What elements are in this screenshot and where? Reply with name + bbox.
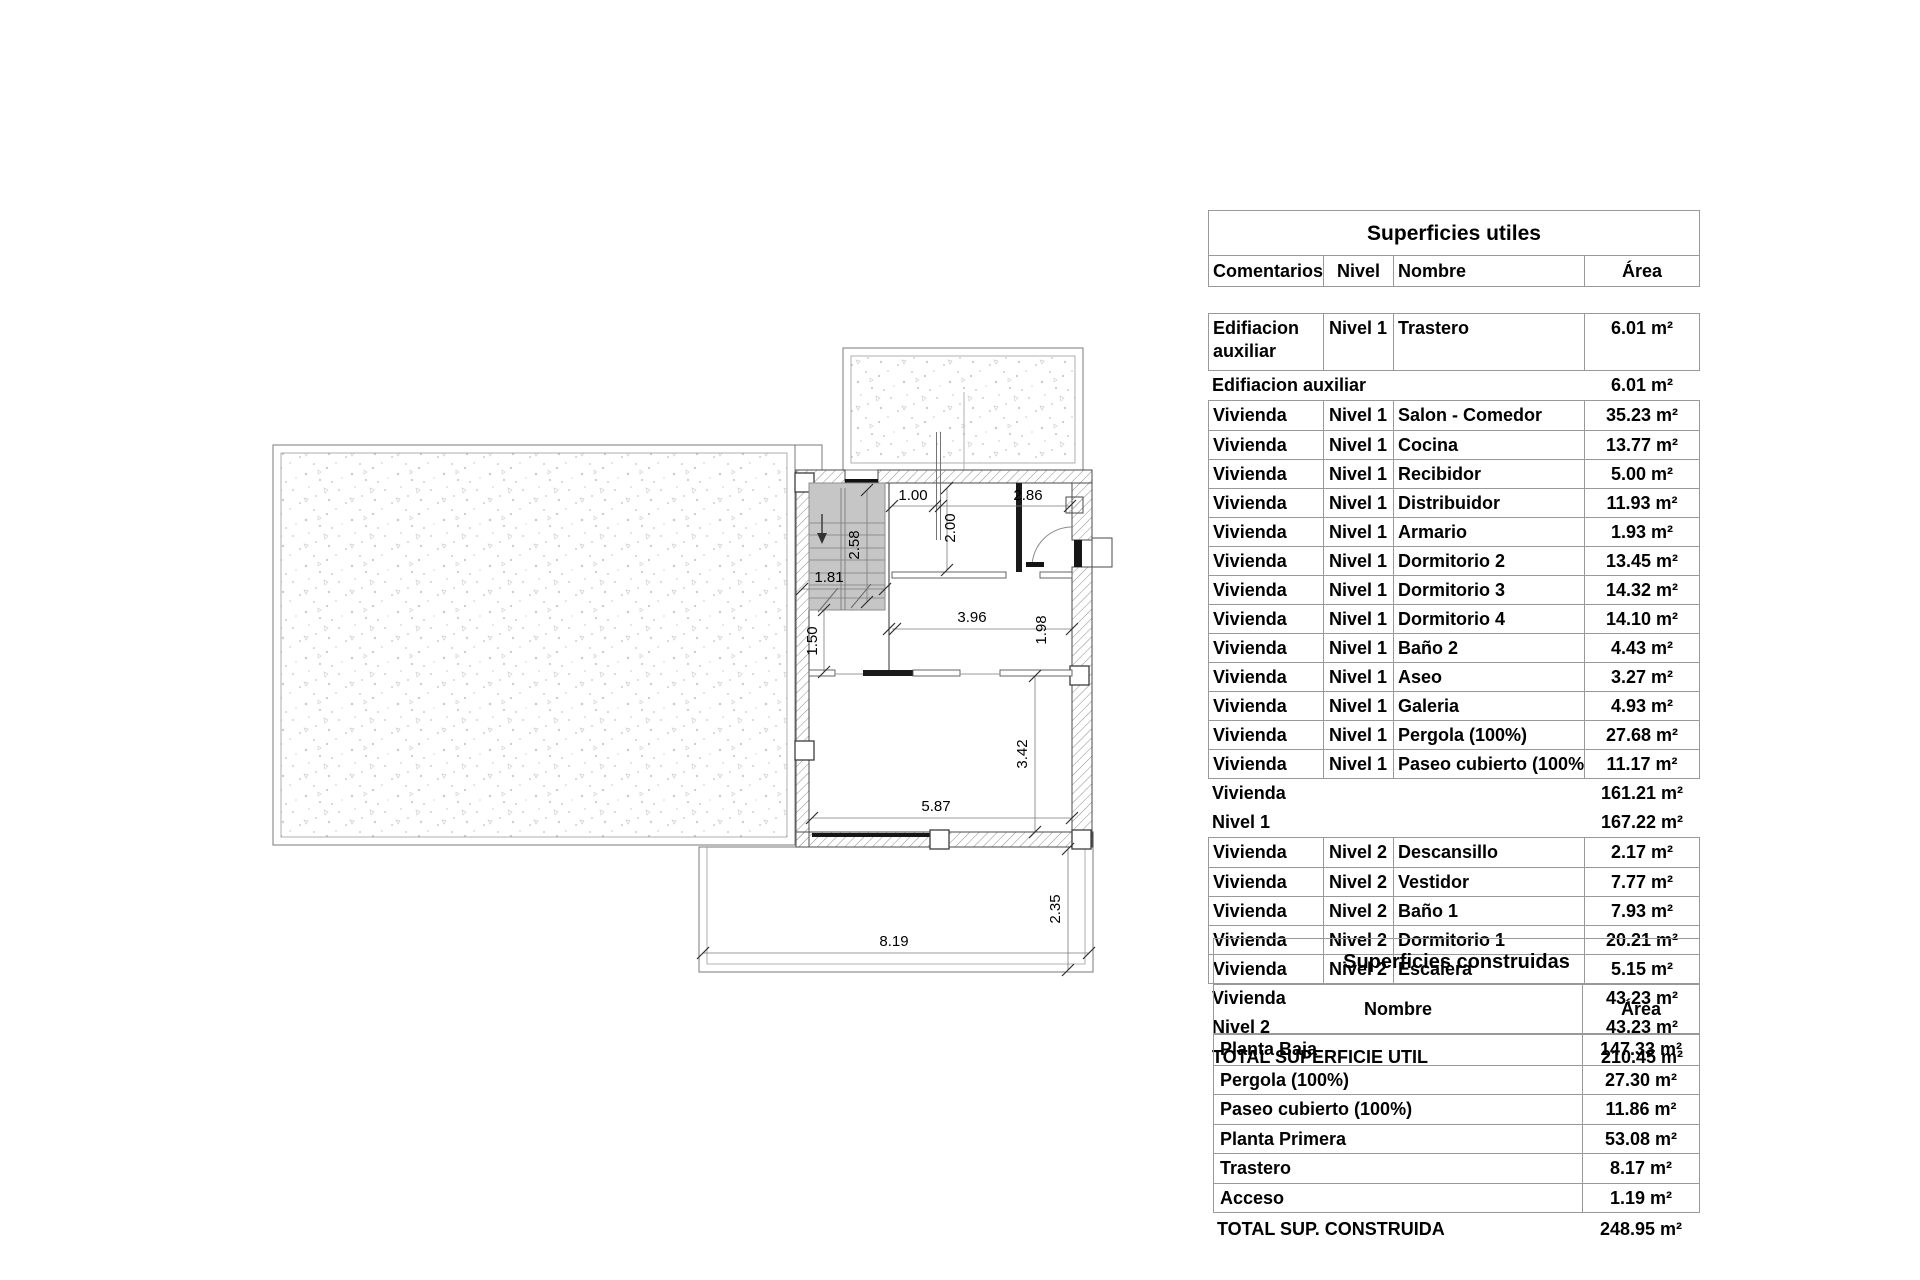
table-row: ViviendaNivel 1Aseo3.27 m² — [1209, 662, 1699, 691]
dimension-label: 2.00 — [942, 513, 959, 542]
table-cell: 8.17 m² — [1582, 1154, 1699, 1183]
table-cell: Nivel 1 — [1323, 314, 1393, 370]
table-cell: Nivel 1 — [1323, 605, 1393, 633]
column-header-nombre: Nombre — [1214, 985, 1582, 1033]
table-cell: 7.77 m² — [1584, 868, 1699, 896]
table-superficies-construidas: Superficies construidas Nombre Área Plan… — [1213, 938, 1700, 1245]
construidas-header-row: Nombre Área — [1214, 985, 1699, 1033]
table-row: ViviendaNivel 1Paseo cubierto (100%)11.1… — [1209, 749, 1699, 778]
table-cell: Nivel 1 — [1323, 431, 1393, 459]
table-cell: Vivienda — [1209, 547, 1323, 575]
table-cell: Salon - Comedor — [1393, 401, 1584, 430]
table-cell: Paseo cubierto (100%) — [1393, 750, 1584, 778]
table-cell: Vivienda — [1209, 750, 1323, 778]
table-row: ViviendaNivel 2Baño 17.93 m² — [1209, 896, 1699, 925]
window-band — [812, 833, 932, 837]
table-cell: Descansillo — [1393, 838, 1584, 867]
table-cell: Baño 2 — [1393, 634, 1584, 662]
dimension-label: 2.35 — [1047, 894, 1064, 923]
table-cell: Dormitorio 4 — [1393, 605, 1584, 633]
terrace-upper — [843, 348, 1083, 470]
table-cell: Nivel 1 — [1323, 634, 1393, 662]
subtotal-value: 6.01 m² — [1584, 371, 1700, 400]
table-row: Pergola (100%)27.30 m² — [1214, 1065, 1699, 1095]
table-cell: 1.19 m² — [1582, 1184, 1699, 1213]
column-header-area: Área — [1584, 256, 1699, 286]
table-cell: 11.17 m² — [1584, 750, 1699, 778]
table-row: ViviendaNivel 1Baño 24.43 m² — [1209, 633, 1699, 662]
utiles-header-row: Comentarios Nivel Nombre Área — [1209, 256, 1699, 286]
table-cell: Vivienda — [1209, 721, 1323, 749]
table-cell: Armario — [1393, 518, 1584, 546]
table-cell: Nivel 1 — [1323, 518, 1393, 546]
table-cell: Nivel 1 — [1323, 750, 1393, 778]
table-cell: Trastero — [1214, 1154, 1582, 1183]
table-cell: 147.33 m² — [1582, 1035, 1699, 1065]
pillar — [1072, 830, 1091, 849]
table-row: Planta Primera53.08 m² — [1214, 1124, 1699, 1154]
stair-opening-sill — [845, 479, 878, 483]
table-cell: 3.27 m² — [1584, 663, 1699, 691]
table-row: ViviendaNivel 1Galeria4.93 m² — [1209, 691, 1699, 720]
dimension-label: 1.00 — [898, 487, 927, 504]
dimension-label: 1.50 — [804, 626, 821, 655]
table-cell: Nivel 2 — [1323, 868, 1393, 896]
table-cell: 11.86 m² — [1582, 1095, 1699, 1124]
table-cell: Aseo — [1393, 663, 1584, 691]
table-cell: Vestidor — [1393, 868, 1584, 896]
pillar — [1070, 666, 1089, 685]
column-header-area: Área — [1582, 985, 1699, 1033]
table-row: Trastero8.17 m² — [1214, 1153, 1699, 1183]
subtotal-label: Nivel 1 — [1212, 808, 1270, 837]
column-header-comentarios: Comentarios — [1209, 256, 1323, 286]
entry-door-slab — [1074, 540, 1082, 567]
table-row: ViviendaNivel 1Pergola (100%)27.68 m² — [1209, 720, 1699, 749]
table-cell: Vivienda — [1209, 518, 1323, 546]
construidas-rows-block: Planta Baja147.33 m²Pergola (100%)27.30 … — [1213, 1034, 1700, 1213]
table-cell: Nivel 1 — [1323, 460, 1393, 488]
table-cell: Nivel 2 — [1323, 838, 1393, 867]
utiles-nivel1-block: ViviendaNivel 1Salon - Comedor35.23 m²Vi… — [1208, 400, 1700, 779]
table-cell: 14.32 m² — [1584, 576, 1699, 604]
table-row: ViviendaNivel 1Armario1.93 m² — [1209, 517, 1699, 546]
pillar — [930, 830, 949, 849]
table-cell: Pergola (100%) — [1393, 721, 1584, 749]
table-cell: Vivienda — [1209, 431, 1323, 459]
table-cell: 5.00 m² — [1584, 460, 1699, 488]
table-cell: Vivienda — [1209, 605, 1323, 633]
table-row: ViviendaNivel 1Distribuidor11.93 m² — [1209, 488, 1699, 517]
table-row: Paseo cubierto (100%)11.86 m² — [1214, 1094, 1699, 1124]
floor-plan-sheet: 1.00 2.86 2.00 2.58 1.81 1.50 3.96 1.98 … — [0, 0, 1920, 1280]
table-cell: Nivel 1 — [1323, 692, 1393, 720]
table-cell: Nivel 1 — [1323, 547, 1393, 575]
table-cell: Edifiacion auxiliar — [1209, 314, 1323, 370]
table-row: ViviendaNivel 2Descansillo2.17 m² — [1209, 838, 1699, 867]
table-row: ViviendaNivel 1Salon - Comedor35.23 m² — [1209, 401, 1699, 430]
table-cell: 14.10 m² — [1584, 605, 1699, 633]
dimension-label: 2.86 — [1013, 487, 1042, 504]
table-cell: 13.77 m² — [1584, 431, 1699, 459]
table-row: ViviendaNivel 1Cocina13.77 m² — [1209, 430, 1699, 459]
table-cell: Nivel 2 — [1323, 897, 1393, 925]
construidas-title: Superficies construidas — [1214, 939, 1699, 985]
table-cell: 1.93 m² — [1584, 518, 1699, 546]
table-cell: Nivel 1 — [1323, 576, 1393, 604]
table-cell: Dormitorio 2 — [1393, 547, 1584, 575]
dimension-label: 5.87 — [921, 798, 950, 815]
table-cell: Distribuidor — [1393, 489, 1584, 517]
table-cell: 4.43 m² — [1584, 634, 1699, 662]
column-header-nivel: Nivel — [1323, 256, 1393, 286]
table-cell: Vivienda — [1209, 634, 1323, 662]
dimension-label: 8.19 — [879, 933, 908, 950]
table-cell: Vivienda — [1209, 663, 1323, 691]
subtotal-row: Edifiacion auxiliar 6.01 m² — [1208, 371, 1700, 400]
table-row: ViviendaNivel 1Recibidor5.00 m² — [1209, 459, 1699, 488]
table-cell: 4.93 m² — [1584, 692, 1699, 720]
table-cell: Nivel 1 — [1323, 401, 1393, 430]
dimension-label: 3.96 — [957, 609, 986, 626]
dimension-label: 3.42 — [1014, 739, 1031, 768]
table-cell: Vivienda — [1209, 838, 1323, 867]
table-cell: Vivienda — [1209, 868, 1323, 896]
table-cell: 27.30 m² — [1582, 1066, 1699, 1095]
terrace-left — [273, 445, 822, 845]
subtotal-label: Vivienda — [1212, 779, 1286, 808]
table-cell: Nivel 1 — [1323, 489, 1393, 517]
table-cell: 2.17 m² — [1584, 838, 1699, 867]
table-cell: Trastero — [1393, 314, 1584, 370]
table-row: ViviendaNivel 1Dormitorio 213.45 m² — [1209, 546, 1699, 575]
utiles-title: Superficies utiles — [1209, 211, 1699, 256]
table-cell: Vivienda — [1209, 692, 1323, 720]
utiles-header-block: Superficies utiles Comentarios Nivel Nom… — [1208, 210, 1700, 287]
table-cell: 35.23 m² — [1584, 401, 1699, 430]
subtotal-row: Vivienda 161.21 m² — [1208, 779, 1700, 808]
total-value: 248.95 m² — [1582, 1213, 1700, 1245]
door-leaf — [1026, 562, 1044, 567]
table-cell: Baño 1 — [1393, 897, 1584, 925]
construidas-header-block: Superficies construidas Nombre Área — [1213, 938, 1700, 1034]
dimension-label: 1.98 — [1033, 615, 1050, 644]
table-cell: Dormitorio 3 — [1393, 576, 1584, 604]
table-cell: Pergola (100%) — [1214, 1066, 1582, 1095]
table-cell: Vivienda — [1209, 401, 1323, 430]
table-row: Edifiacion auxiliar Nivel 1 Trastero 6.0… — [1209, 314, 1699, 370]
table-cell: Paseo cubierto (100%) — [1214, 1095, 1582, 1124]
table-cell: Planta Baja — [1214, 1035, 1582, 1065]
dimension-label: 2.58 — [846, 530, 863, 559]
table-cell: Nivel 1 — [1323, 721, 1393, 749]
table-cell: 53.08 m² — [1582, 1125, 1699, 1154]
table-cell: 11.93 m² — [1584, 489, 1699, 517]
table-cell: Vivienda — [1209, 897, 1323, 925]
total-label: TOTAL SUP. CONSTRUIDA — [1217, 1213, 1445, 1245]
table-cell: Planta Primera — [1214, 1125, 1582, 1154]
table-cell: 13.45 m² — [1584, 547, 1699, 575]
table-row: ViviendaNivel 1Dormitorio 314.32 m² — [1209, 575, 1699, 604]
table-cell: 27.68 m² — [1584, 721, 1699, 749]
table-cell: Recibidor — [1393, 460, 1584, 488]
entry-step — [1092, 538, 1112, 567]
table-cell: Vivienda — [1209, 576, 1323, 604]
table-cell: Vivienda — [1209, 489, 1323, 517]
subtotal-value: 167.22 m² — [1584, 808, 1700, 837]
pillar — [795, 741, 814, 760]
subtotal-row: Nivel 1 167.22 m² — [1208, 808, 1700, 837]
table-cell: Cocina — [1393, 431, 1584, 459]
subtotal-label: Edifiacion auxiliar — [1212, 371, 1366, 400]
column-header-nombre: Nombre — [1393, 256, 1584, 286]
spacer — [1208, 287, 1700, 313]
table-row: Acceso1.19 m² — [1214, 1183, 1699, 1213]
table-row: ViviendaNivel 2Vestidor7.77 m² — [1209, 867, 1699, 896]
table-cell: 7.93 m² — [1584, 897, 1699, 925]
table-cell: Acceso — [1214, 1184, 1582, 1213]
table-cell: Vivienda — [1209, 460, 1323, 488]
total-sup-construida-row: TOTAL SUP. CONSTRUIDA 248.95 m² — [1213, 1213, 1700, 1245]
table-cell: Nivel 1 — [1323, 663, 1393, 691]
table-cell: Galeria — [1393, 692, 1584, 720]
table-cell: 6.01 m² — [1584, 314, 1699, 370]
table-row: ViviendaNivel 1Dormitorio 414.10 m² — [1209, 604, 1699, 633]
table-row: Planta Baja147.33 m² — [1214, 1035, 1699, 1065]
utiles-edif-block: Edifiacion auxiliar Nivel 1 Trastero 6.0… — [1208, 313, 1700, 371]
door-swing-arc — [1032, 527, 1072, 567]
subtotal-value: 161.21 m² — [1584, 779, 1700, 808]
dimension-label: 1.81 — [814, 569, 843, 586]
